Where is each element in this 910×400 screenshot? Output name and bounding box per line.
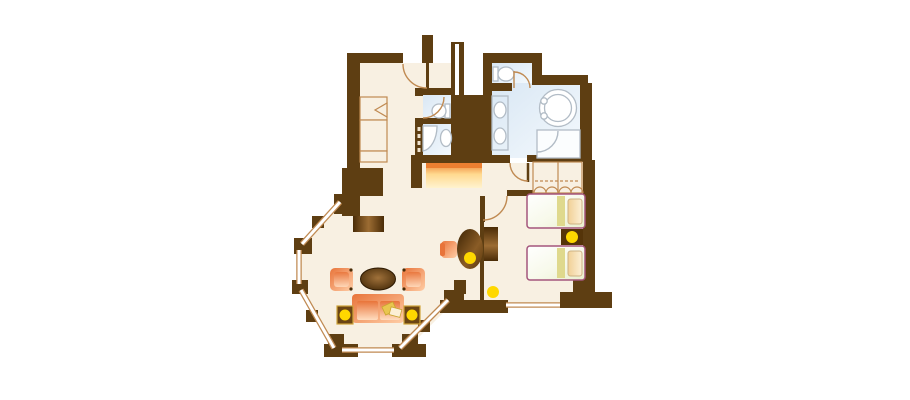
armchair-foot bbox=[402, 287, 405, 290]
coffee-table bbox=[361, 268, 396, 290]
bedroom-door-leaf bbox=[482, 196, 485, 222]
desk-chair-back bbox=[440, 243, 445, 256]
armchair-seat bbox=[334, 272, 349, 287]
armchair-seat bbox=[406, 272, 421, 287]
sink-icon bbox=[494, 102, 506, 118]
wall-segment bbox=[483, 53, 492, 160]
wall-notch bbox=[455, 44, 459, 95]
stepped-wall bbox=[573, 280, 595, 294]
sink-icon bbox=[441, 130, 452, 147]
toilet-tank bbox=[493, 67, 498, 81]
blanket-band bbox=[557, 196, 565, 226]
pillow bbox=[568, 199, 582, 224]
closet-shelf bbox=[360, 151, 387, 162]
twin-bed-1 bbox=[527, 194, 585, 228]
wall-segment bbox=[415, 88, 451, 95]
armchair-foot bbox=[349, 268, 352, 271]
entry-door-leaf bbox=[426, 63, 429, 88]
pillow bbox=[568, 251, 582, 276]
shower-stall bbox=[537, 130, 580, 158]
table-lamp bbox=[340, 310, 351, 321]
floor-plan-canvas bbox=[0, 0, 910, 400]
side-table-left bbox=[337, 306, 353, 324]
wall-segment bbox=[532, 63, 542, 85]
round-bathtub-inner bbox=[545, 95, 572, 122]
tv-cabinet bbox=[484, 227, 498, 261]
table-lamp bbox=[407, 310, 418, 321]
wall-segment bbox=[423, 118, 451, 124]
armchair-foot bbox=[402, 268, 405, 271]
wall-segment bbox=[483, 83, 512, 91]
wall-segment bbox=[411, 155, 464, 163]
wall-segment bbox=[483, 155, 510, 163]
bay-pier bbox=[454, 280, 466, 294]
armchair-foot bbox=[349, 287, 352, 290]
wall-segment bbox=[422, 35, 433, 63]
wall-segment bbox=[347, 53, 360, 168]
floor-lamp bbox=[487, 286, 499, 298]
bathtub-notch bbox=[541, 98, 547, 104]
wall-segment bbox=[483, 53, 542, 63]
toilet-icon bbox=[498, 67, 514, 81]
closet-shelf bbox=[360, 120, 387, 151]
nightstand-lamp bbox=[566, 231, 578, 243]
wall-segment bbox=[342, 168, 383, 196]
stepped-wall bbox=[560, 292, 612, 308]
blanket-band bbox=[557, 248, 565, 278]
wall-segment bbox=[464, 95, 483, 163]
twin-bed-2 bbox=[527, 246, 585, 280]
sideboard bbox=[353, 216, 384, 232]
armchair-right bbox=[402, 268, 425, 291]
wall-segment bbox=[580, 83, 592, 162]
floor-plan bbox=[0, 0, 910, 400]
desk-lamp bbox=[464, 252, 476, 264]
nightstand bbox=[561, 229, 583, 245]
armchair-left bbox=[330, 268, 353, 291]
side-table-right bbox=[404, 306, 420, 324]
wall-segment bbox=[411, 163, 422, 188]
sofa bbox=[352, 294, 404, 323]
console-top-edge bbox=[426, 163, 482, 168]
sofa-cushion bbox=[357, 301, 378, 320]
bathtub-notch bbox=[541, 113, 547, 119]
door-opening bbox=[415, 96, 423, 118]
sink-icon bbox=[494, 128, 506, 144]
